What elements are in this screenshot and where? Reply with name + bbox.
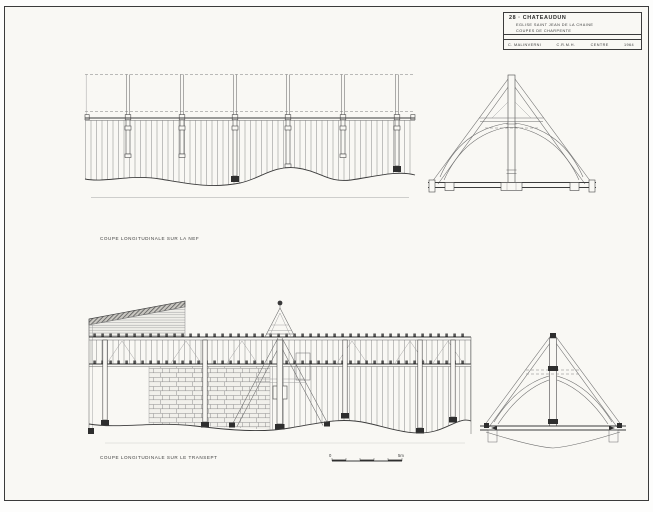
credit-year: 1964 xyxy=(624,43,634,47)
scale-end-label: 5m xyxy=(398,453,404,458)
nave-roof-space xyxy=(85,75,415,121)
credit-org: C.R.M.H. xyxy=(557,43,576,47)
title-subject: COUPES DE CHARPENTE xyxy=(516,29,571,33)
title-divider-1 xyxy=(504,34,641,35)
scanned-drawing-page: { "sheet": { "paper_color": "#f9f8f4", "… xyxy=(0,0,653,512)
caption-nave-section: COUPE LONGITUDINALE SUR LA NEF xyxy=(100,236,199,241)
wall-plate-with-rafter-dots xyxy=(89,334,471,340)
credit-author: C. MALINVERNI xyxy=(508,43,541,47)
plank-band-lower xyxy=(270,367,471,433)
nave-planking xyxy=(85,121,415,186)
title-block: 28 · CHATEAUDUN EGLISE SAINT JEAN DE LA … xyxy=(503,12,642,50)
truss-tie-beam xyxy=(480,423,626,442)
title-building: EGLISE SAINT JEAN DE LA CHAINE xyxy=(516,23,593,27)
scale-zero-label: 0 xyxy=(329,453,332,458)
kingpost-foot-joint xyxy=(548,419,558,424)
nave-section-drawing xyxy=(85,70,415,205)
vault-extrados-arc xyxy=(486,432,620,448)
caption-transept-section: COUPE LONGITUDINALE SUR LE TRANSEPT xyxy=(100,455,217,460)
title-commune: 28 · CHATEAUDUN xyxy=(509,15,566,21)
title-credit-row: C. MALINVERNI C.R.M.H. CENTRE 1964 xyxy=(508,43,634,47)
truss-king-post xyxy=(550,338,557,426)
apex-joint xyxy=(550,333,556,338)
truss-king-post xyxy=(508,75,515,183)
transept-section-drawing xyxy=(85,296,475,448)
central-fleche xyxy=(265,301,295,337)
transept-truss-drawing xyxy=(478,330,628,448)
nave-truss-drawing xyxy=(428,72,596,200)
scale-bar: 0 5m xyxy=(326,452,410,468)
collar-joint xyxy=(548,366,558,371)
title-divider-2 xyxy=(504,39,641,40)
credit-region: CENTRE xyxy=(591,43,609,47)
